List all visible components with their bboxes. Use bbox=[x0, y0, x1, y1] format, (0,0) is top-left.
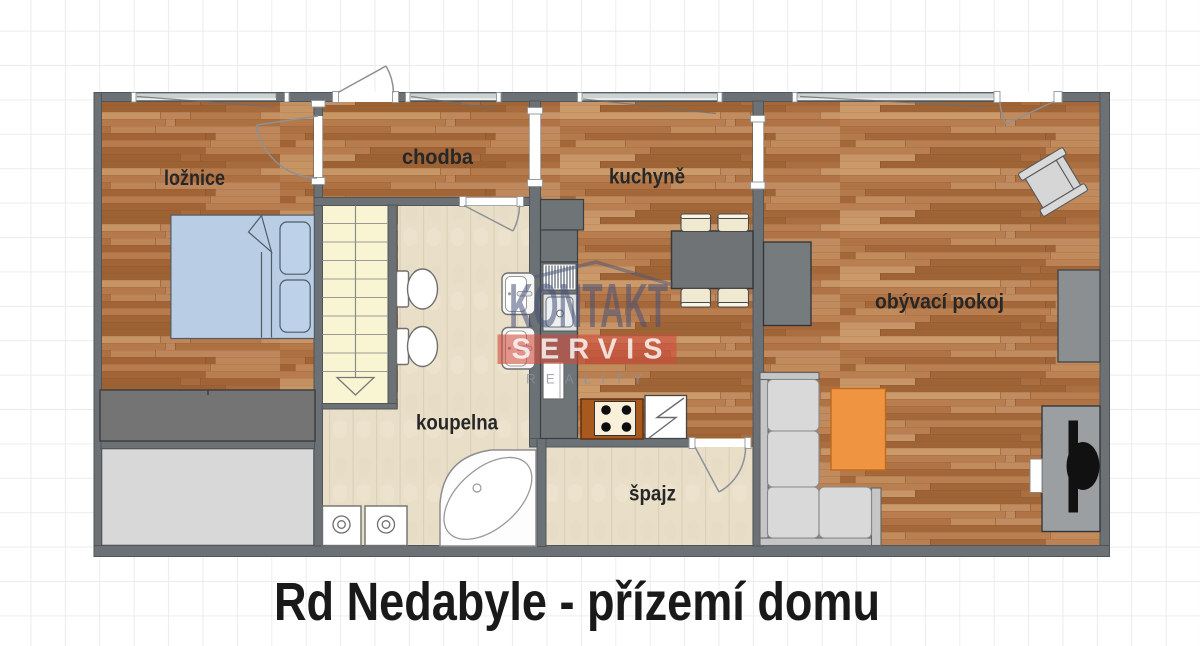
svg-text:KONTAKT: KONTAKT bbox=[509, 272, 668, 341]
svg-text:chodba: chodba bbox=[402, 146, 473, 169]
svg-text:REALITY: REALITY bbox=[526, 372, 652, 387]
svg-text:ložnice: ložnice bbox=[164, 167, 225, 190]
svg-text:obývací pokoj: obývací pokoj bbox=[875, 291, 1004, 314]
svg-text:kuchyně: kuchyně bbox=[609, 166, 685, 189]
svg-text:špajz: špajz bbox=[629, 483, 676, 506]
svg-text:Rd Nedabyle - přízemí domu: Rd Nedabyle - přízemí domu bbox=[274, 572, 880, 632]
svg-text:koupelna: koupelna bbox=[416, 412, 498, 435]
